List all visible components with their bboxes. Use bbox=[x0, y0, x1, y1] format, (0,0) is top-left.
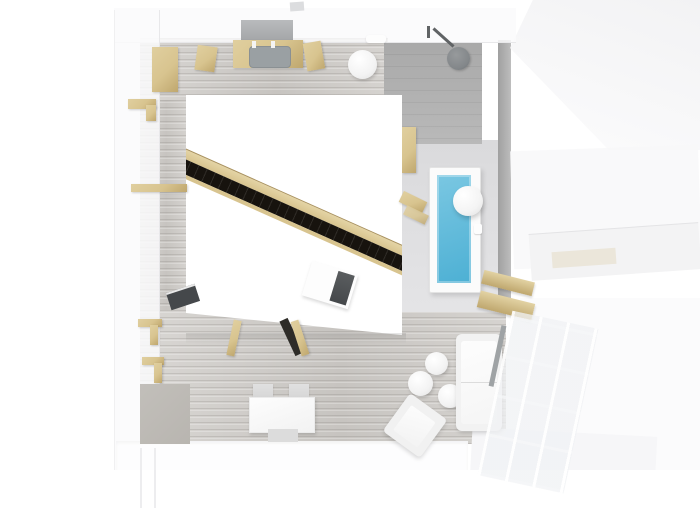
dining-chair-1 bbox=[253, 384, 273, 398]
foreground-door-lines bbox=[128, 448, 158, 508]
wall-bracket-low-1-leg bbox=[150, 325, 158, 345]
loft-volume bbox=[186, 95, 402, 340]
wall-shelf-thin bbox=[131, 184, 187, 192]
bathroom-cabinet bbox=[402, 127, 416, 173]
sphere-lamp bbox=[453, 186, 483, 216]
coffee-table-2 bbox=[408, 371, 433, 396]
top-wall-mark bbox=[290, 2, 305, 12]
bathtub-faucet bbox=[474, 224, 482, 234]
top-wall bbox=[114, 8, 516, 43]
chair-left bbox=[194, 45, 217, 73]
desk-chair-seat bbox=[249, 46, 291, 68]
wardrobe bbox=[152, 47, 178, 92]
stair-channel bbox=[186, 145, 402, 279]
partition-wall bbox=[498, 40, 511, 302]
dining-chair-2 bbox=[289, 384, 309, 398]
showerhead bbox=[447, 47, 470, 70]
wall-tray bbox=[366, 35, 386, 43]
dining-chair-3 bbox=[268, 429, 298, 442]
showerhead-pipe bbox=[427, 26, 430, 38]
wall-bracket-top-leg bbox=[146, 105, 156, 121]
laptop-on-roof bbox=[302, 261, 358, 309]
round-stool bbox=[348, 50, 377, 79]
armchair-cushion bbox=[393, 405, 435, 448]
wall-bracket-low-2-leg bbox=[154, 363, 162, 383]
rug bbox=[140, 384, 190, 444]
floor-bottom-area bbox=[140, 310, 506, 444]
desk-chair-arm-right bbox=[271, 41, 275, 48]
coffee-table-1 bbox=[425, 352, 448, 375]
laptop-screen bbox=[329, 271, 354, 306]
tv bbox=[241, 20, 293, 42]
bottom-margin bbox=[0, 470, 700, 524]
apartment-render bbox=[0, 0, 700, 524]
dining-table bbox=[249, 397, 315, 433]
exterior-roof-shape bbox=[510, 0, 700, 150]
desk-chair-arm-left bbox=[252, 41, 256, 48]
